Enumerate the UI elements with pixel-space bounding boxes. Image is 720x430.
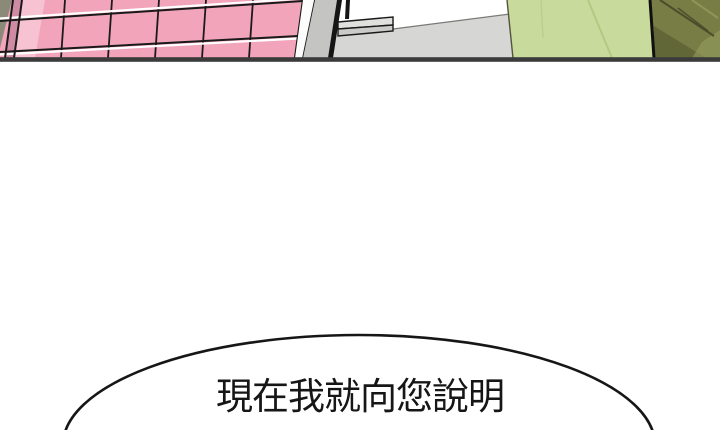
speech-bubble: [0, 0, 720, 430]
comic-page: 現在我就向您說明: [0, 0, 720, 430]
speech-bubble-text: 現在我就向您說明: [0, 376, 720, 418]
